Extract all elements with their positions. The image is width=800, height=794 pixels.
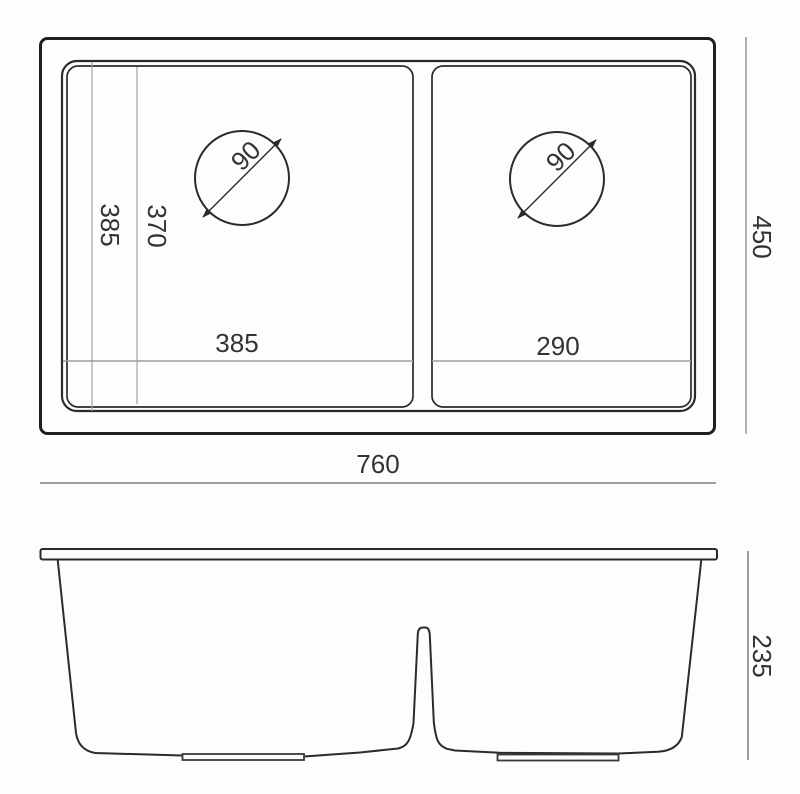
- height-dimension: 235: [747, 551, 777, 760]
- left-bowl-width-label: 385: [215, 328, 258, 358]
- right-bowl-width-label: 290: [536, 331, 579, 361]
- left-foot-pad: [183, 754, 305, 760]
- overall-width-label: 760: [356, 449, 399, 479]
- overall-depth-label: 450: [747, 215, 777, 258]
- overall-depth-dimension: 450: [746, 37, 777, 434]
- height-label: 235: [747, 634, 777, 677]
- top-view-outer-edge: [41, 39, 715, 434]
- side-view: [41, 549, 718, 761]
- side-view-body-outline: [58, 558, 702, 757]
- bowl-depth-outer-label: 385: [95, 203, 125, 246]
- side-view-rim-bar: [41, 549, 718, 560]
- sink-technical-drawing: 90 90 385 370 385 290 760 450 235: [0, 0, 800, 794]
- overall-width-dimension: 760: [40, 449, 716, 483]
- bowl-depth-inner-label: 370: [142, 204, 172, 247]
- top-view: 90 90 385 370 385 290: [41, 39, 715, 434]
- drawing-canvas: 90 90 385 370 385 290 760 450 235: [0, 0, 800, 794]
- right-foot-pad: [498, 755, 619, 761]
